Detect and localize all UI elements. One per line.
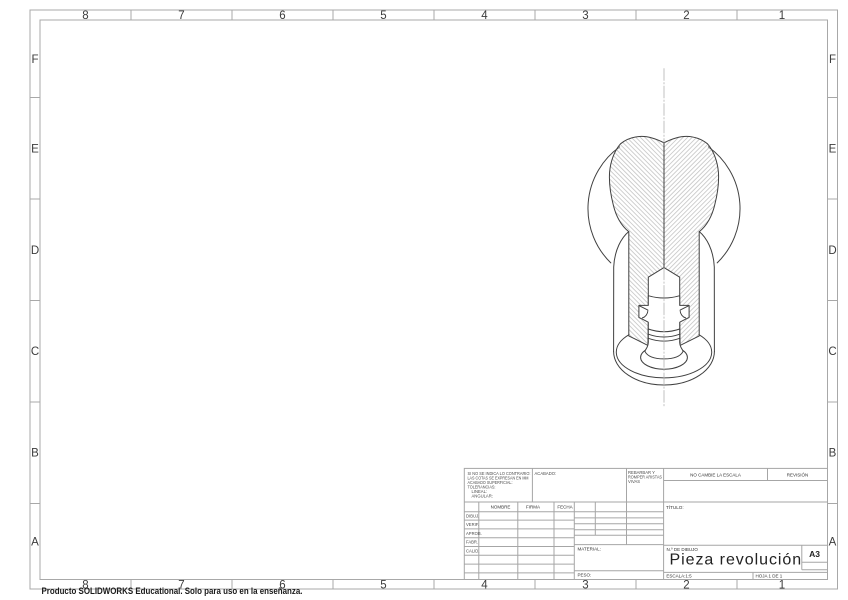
svg-text:E: E: [829, 143, 837, 155]
svg-text:4: 4: [481, 579, 488, 591]
svg-text:E: E: [31, 143, 39, 155]
svg-text:FIRMA: FIRMA: [526, 505, 540, 510]
svg-text:1: 1: [779, 579, 785, 591]
svg-text:CALID.: CALID.: [466, 549, 480, 554]
svg-text:FABR.: FABR.: [466, 540, 478, 545]
svg-text:ANGULAR:: ANGULAR:: [472, 493, 493, 498]
svg-text:VERIF.: VERIF.: [466, 522, 479, 527]
svg-text:TÍTULO:: TÍTULO:: [666, 504, 684, 510]
svg-text:5: 5: [380, 10, 386, 22]
svg-text:F: F: [829, 54, 836, 66]
svg-text:Producto SOLIDWORKS Educationa: Producto SOLIDWORKS Educational. Solo pa…: [42, 586, 303, 596]
svg-text:3: 3: [582, 579, 588, 591]
svg-text:PESO:: PESO:: [578, 572, 592, 577]
svg-text:D: D: [31, 245, 39, 257]
svg-text:2: 2: [683, 579, 689, 591]
svg-text:5: 5: [380, 579, 386, 591]
svg-text:NOMBRE: NOMBRE: [491, 505, 511, 510]
svg-text:B: B: [31, 448, 39, 460]
svg-text:6: 6: [279, 10, 285, 22]
svg-text:F: F: [31, 54, 38, 66]
svg-text:DIBUJ.: DIBUJ.: [466, 513, 479, 518]
svg-text:ESCALA:1:5: ESCALA:1:5: [666, 574, 692, 579]
svg-text:B: B: [829, 448, 837, 460]
svg-text:NO CAMBIE LA ESCALA: NO CAMBIE LA ESCALA: [690, 472, 741, 477]
svg-text:A3: A3: [809, 549, 820, 559]
svg-text:VIVAS: VIVAS: [628, 479, 640, 484]
svg-text:3: 3: [582, 10, 588, 22]
svg-text:REVISIÓN: REVISIÓN: [787, 471, 809, 477]
svg-text:A: A: [829, 537, 837, 549]
svg-text:ACABADO:: ACABADO:: [535, 471, 557, 476]
svg-text:FECHA: FECHA: [557, 505, 572, 510]
svg-text:8: 8: [82, 10, 88, 22]
svg-text:A: A: [31, 537, 39, 549]
svg-text:C: C: [31, 346, 39, 358]
svg-text:2: 2: [683, 10, 689, 22]
svg-text:4: 4: [481, 10, 488, 22]
svg-text:MATERIAL:: MATERIAL:: [578, 547, 601, 552]
svg-text:1: 1: [779, 10, 785, 22]
svg-text:D: D: [828, 245, 836, 257]
svg-text:C: C: [828, 346, 836, 358]
svg-text:APROB.: APROB.: [466, 531, 482, 536]
svg-text:7: 7: [178, 10, 184, 22]
svg-text:Pieza revolución: Pieza revolución: [670, 552, 803, 569]
svg-text:HOJA 1 DE 1: HOJA 1 DE 1: [756, 574, 783, 579]
